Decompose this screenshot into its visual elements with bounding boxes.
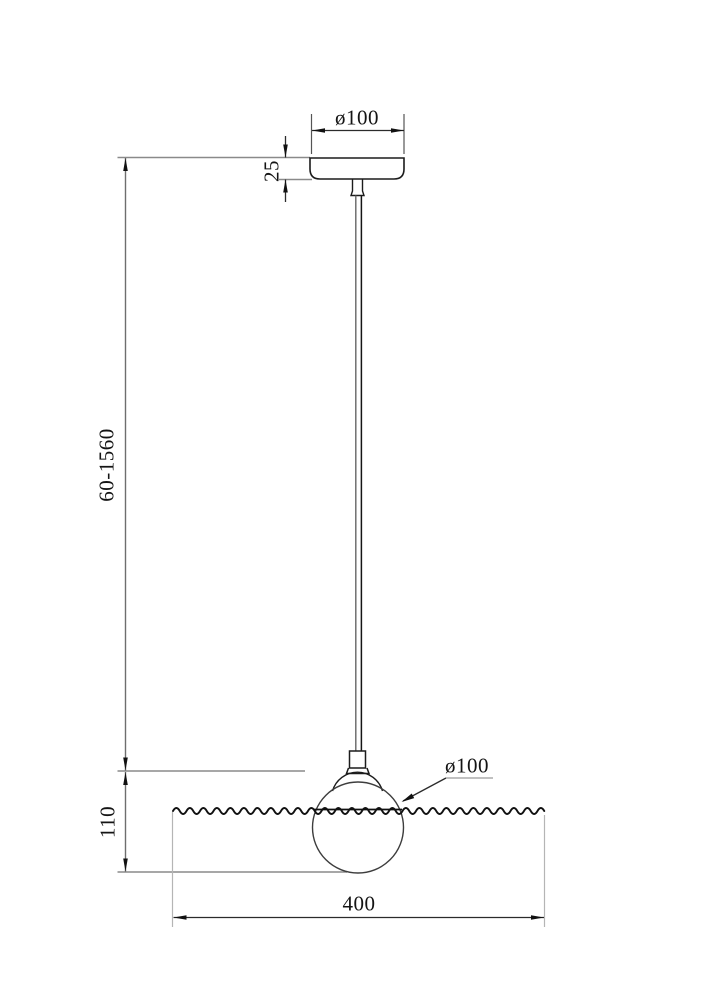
lamp-socket: [347, 751, 370, 774]
arrow-canopy-dia-left: [312, 128, 325, 133]
label-shade-height: 110: [98, 806, 119, 838]
drawing-page: ø100 25 60-1560 ø100 110 400: [0, 0, 707, 1000]
label-canopy-diameter: ø100: [335, 108, 379, 129]
dimension-arrowheads: [123, 128, 544, 920]
arrow-25-up: [283, 180, 288, 193]
label-canopy-height: 25: [262, 160, 283, 182]
arrow-25-down: [283, 145, 288, 158]
arrow-110-down: [123, 859, 128, 872]
ceiling-canopy: [310, 158, 404, 179]
arrow-suspension-down: [123, 758, 128, 771]
arrow-leader-shade: [402, 794, 415, 803]
extension-lines: [118, 158, 348, 873]
glass-sphere: [313, 782, 404, 873]
label-disc-width: 400: [343, 894, 376, 915]
arrow-400-right: [531, 915, 544, 920]
arrow-canopy-dia-right: [391, 128, 404, 133]
arrow-400-left: [174, 915, 187, 920]
dimension-lines: [126, 114, 545, 918]
arrow-suspension-up: [123, 158, 128, 171]
arrow-110-up: [123, 772, 128, 785]
label-shade-diameter: ø100: [445, 756, 489, 777]
canopy-stem: [351, 179, 364, 196]
label-suspension-length: 60-1560: [97, 428, 118, 502]
